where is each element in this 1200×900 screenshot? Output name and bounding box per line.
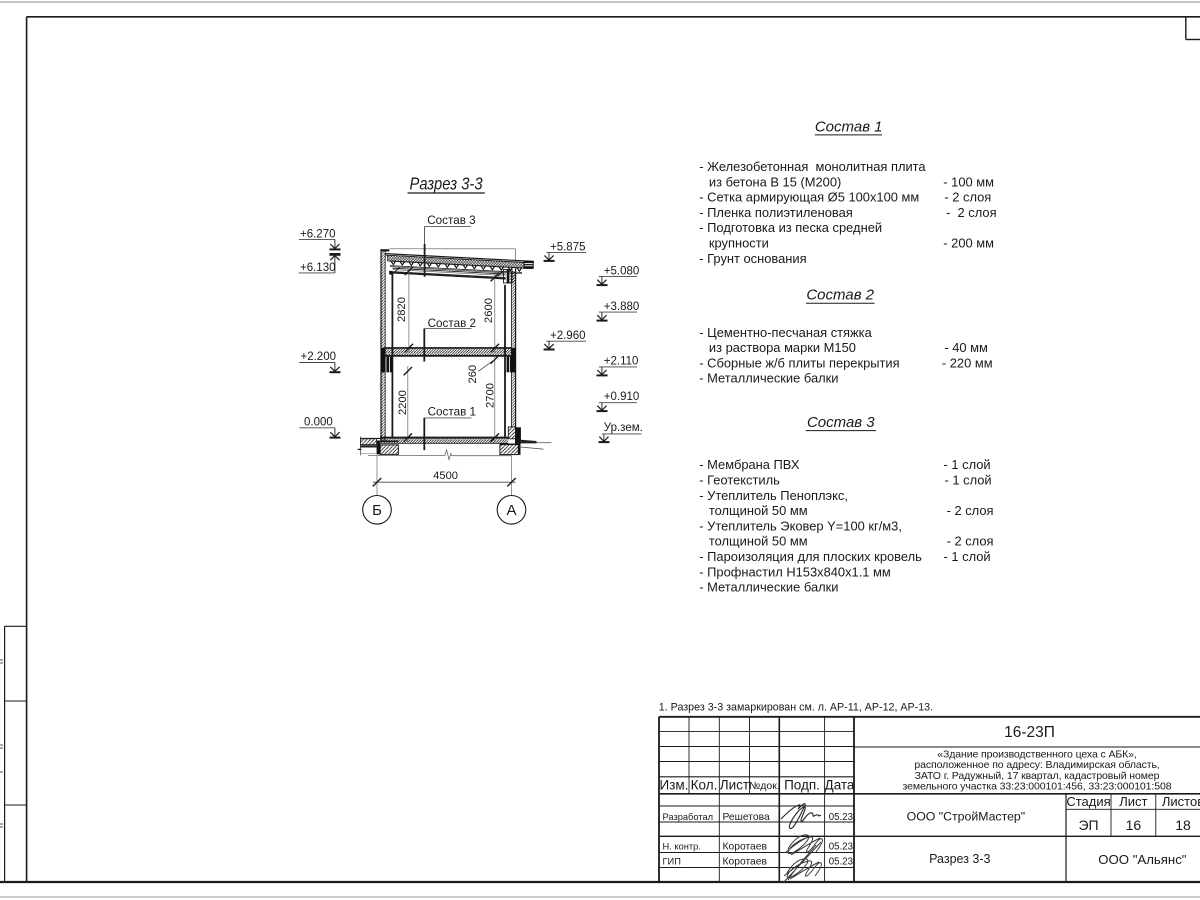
- svg-text:2200: 2200: [397, 390, 409, 415]
- svg-text:Решетова: Решетова: [723, 812, 770, 823]
- svg-text:Разработал: Разработал: [663, 812, 714, 822]
- svg-text:2820: 2820: [396, 297, 408, 322]
- svg-text:ЭП: ЭП: [1078, 817, 1098, 833]
- svg-text:Н. контр.: Н. контр.: [663, 841, 701, 851]
- svg-text:Изм.: Изм.: [660, 777, 689, 792]
- svg-text:- Грунт основания: - Грунт основания: [699, 251, 806, 266]
- svg-text:- Сетка армирующая Ø5 100х100: - Сетка армирующая Ø5 100х100 мм: [699, 190, 919, 205]
- svg-text:Лист: Лист: [1119, 794, 1147, 809]
- svg-text:толщиной 50 мм: толщиной 50 мм: [709, 534, 808, 549]
- svg-text:- Железобетонная монолитная п: - Железобетонная монолитная плита: [699, 159, 926, 174]
- svg-text:- 2 слоя: - 2 слоя: [947, 534, 994, 549]
- svg-text:- Сборные ж/б плиты перекрытия: - Сборные ж/б плиты перекрытия: [699, 355, 899, 370]
- svg-text:Листов: Листов: [1162, 794, 1200, 809]
- svg-text:Стадия: Стадия: [1066, 794, 1110, 809]
- svg-text:ГИП: ГИП: [663, 856, 681, 866]
- svg-text:16: 16: [1126, 817, 1142, 833]
- svg-text:Состав 3: Состав 3: [427, 214, 475, 227]
- svg-text:Лист: Лист: [720, 777, 749, 792]
- svg-text:Б: Б: [372, 502, 382, 519]
- svg-text:из бетона В 15 (М200): из бетона В 15 (М200): [709, 174, 841, 189]
- svg-text:05.23: 05.23: [829, 812, 853, 823]
- svg-text:- Подготовка из песка средней: - Подготовка из песка средней: [699, 220, 882, 235]
- svg-text:+6.130: +6.130: [300, 262, 336, 274]
- svg-text:- 1 слой: - 1 слой: [945, 473, 992, 488]
- svg-text:из раствора марки М150: из раствора марки М150: [709, 340, 856, 355]
- svg-text:- Профнастил Н153х840х1.1 мм: - Профнастил Н153х840х1.1 мм: [699, 564, 890, 579]
- svg-text:Состав 2: Состав 2: [806, 287, 874, 304]
- svg-text:05.23: 05.23: [829, 842, 853, 853]
- svg-text:+6.270: +6.270: [300, 228, 336, 240]
- svg-text:18: 18: [1175, 817, 1191, 833]
- svg-text:- Мембрана ПВХ: - Мембрана ПВХ: [699, 457, 800, 472]
- svg-text:260: 260: [467, 365, 479, 384]
- svg-text:+5.875: +5.875: [550, 241, 586, 253]
- svg-text:Разрез 3-3: Разрез 3-3: [929, 852, 990, 866]
- svg-text:Состав 1: Состав 1: [428, 405, 476, 418]
- svg-text:2600: 2600: [483, 298, 495, 323]
- svg-text:05.23: 05.23: [829, 857, 853, 868]
- svg-text:- 2 слоя: - 2 слоя: [944, 190, 991, 205]
- svg-text:0.000: 0.000: [304, 417, 333, 429]
- svg-text:- Пароизоляция для плоских кро: - Пароизоляция для плоских кровель: [699, 549, 922, 564]
- svg-text:- Металлические балки: - Металлические балки: [699, 371, 838, 386]
- svg-text:крупности: крупности: [709, 236, 769, 251]
- svg-text:Дата: Дата: [825, 777, 855, 792]
- svg-text:+2.110: +2.110: [604, 356, 639, 368]
- svg-text:+0.910: +0.910: [604, 391, 640, 403]
- svg-text:+5.080: +5.080: [604, 266, 640, 278]
- svg-text:Подп.: Подп.: [784, 777, 820, 792]
- svg-text:- 2 слоя: - 2 слоя: [947, 503, 994, 518]
- svg-text:- 2 слоя: - 2 слоя: [946, 205, 996, 220]
- svg-text:толщиной 50 мм: толщиной 50 мм: [709, 503, 808, 518]
- svg-text:+2.200: +2.200: [301, 351, 337, 363]
- svg-text:Состав 1: Состав 1: [815, 118, 883, 135]
- svg-text:+2.960: +2.960: [550, 330, 586, 342]
- svg-text:А: А: [506, 502, 516, 519]
- svg-text:+3.880: +3.880: [604, 301, 640, 313]
- svg-text:- 220 мм: - 220 мм: [942, 355, 993, 370]
- svg-text:16-23П: 16-23П: [1004, 724, 1055, 741]
- svg-text:Коротаев: Коротаев: [723, 841, 768, 852]
- svg-text:- 200 мм: - 200 мм: [943, 236, 994, 251]
- svg-text:- 40 мм: - 40 мм: [944, 340, 988, 355]
- svg-text:- 1 слой: - 1 слой: [944, 549, 991, 564]
- svg-text:земельного участка 33:23:00010: земельного участка 33:23:000101:456, 33:…: [903, 781, 1172, 793]
- svg-text:1. Разрез 3-3 замаркирован см.: 1. Разрез 3-3 замаркирован см. л. АР-11,…: [659, 701, 933, 713]
- svg-text:- Утеплитель Пеноплэкс,: - Утеплитель Пеноплэкс,: [699, 488, 848, 503]
- svg-text:Кол.: Кол.: [691, 777, 718, 792]
- svg-text:Ур.зем.: Ур.зем.: [604, 422, 643, 434]
- svg-text:2700: 2700: [484, 383, 496, 408]
- svg-text:- Утеплитель Эковер Y=100 кг/м: - Утеплитель Эковер Y=100 кг/м3,: [699, 518, 902, 533]
- svg-text:Коротаев: Коротаев: [723, 856, 768, 867]
- svg-text:Состав 3: Состав 3: [807, 414, 875, 431]
- svg-text:- Цементно-песчаная стяжка: - Цементно-песчаная стяжка: [699, 325, 872, 340]
- svg-text:- Пленка полиэтиленовая: - Пленка полиэтиленовая: [699, 205, 852, 220]
- svg-text:ООО "СтройМастер": ООО "СтройМастер": [907, 809, 1025, 823]
- svg-text:- 100 мм: - 100 мм: [943, 174, 994, 189]
- svg-text:ООО "Альянс": ООО "Альянс": [1098, 852, 1186, 867]
- svg-text:4500: 4500: [433, 470, 458, 482]
- svg-text:- Геотекстиль: - Геотекстиль: [699, 473, 780, 488]
- svg-text:- 1 слой: - 1 слой: [944, 457, 991, 472]
- svg-text:№док.: №док.: [749, 780, 780, 792]
- svg-text:Разрез 3-3: Разрез 3-3: [409, 174, 482, 194]
- svg-text:- Металлические балки: - Металлические балки: [699, 580, 838, 595]
